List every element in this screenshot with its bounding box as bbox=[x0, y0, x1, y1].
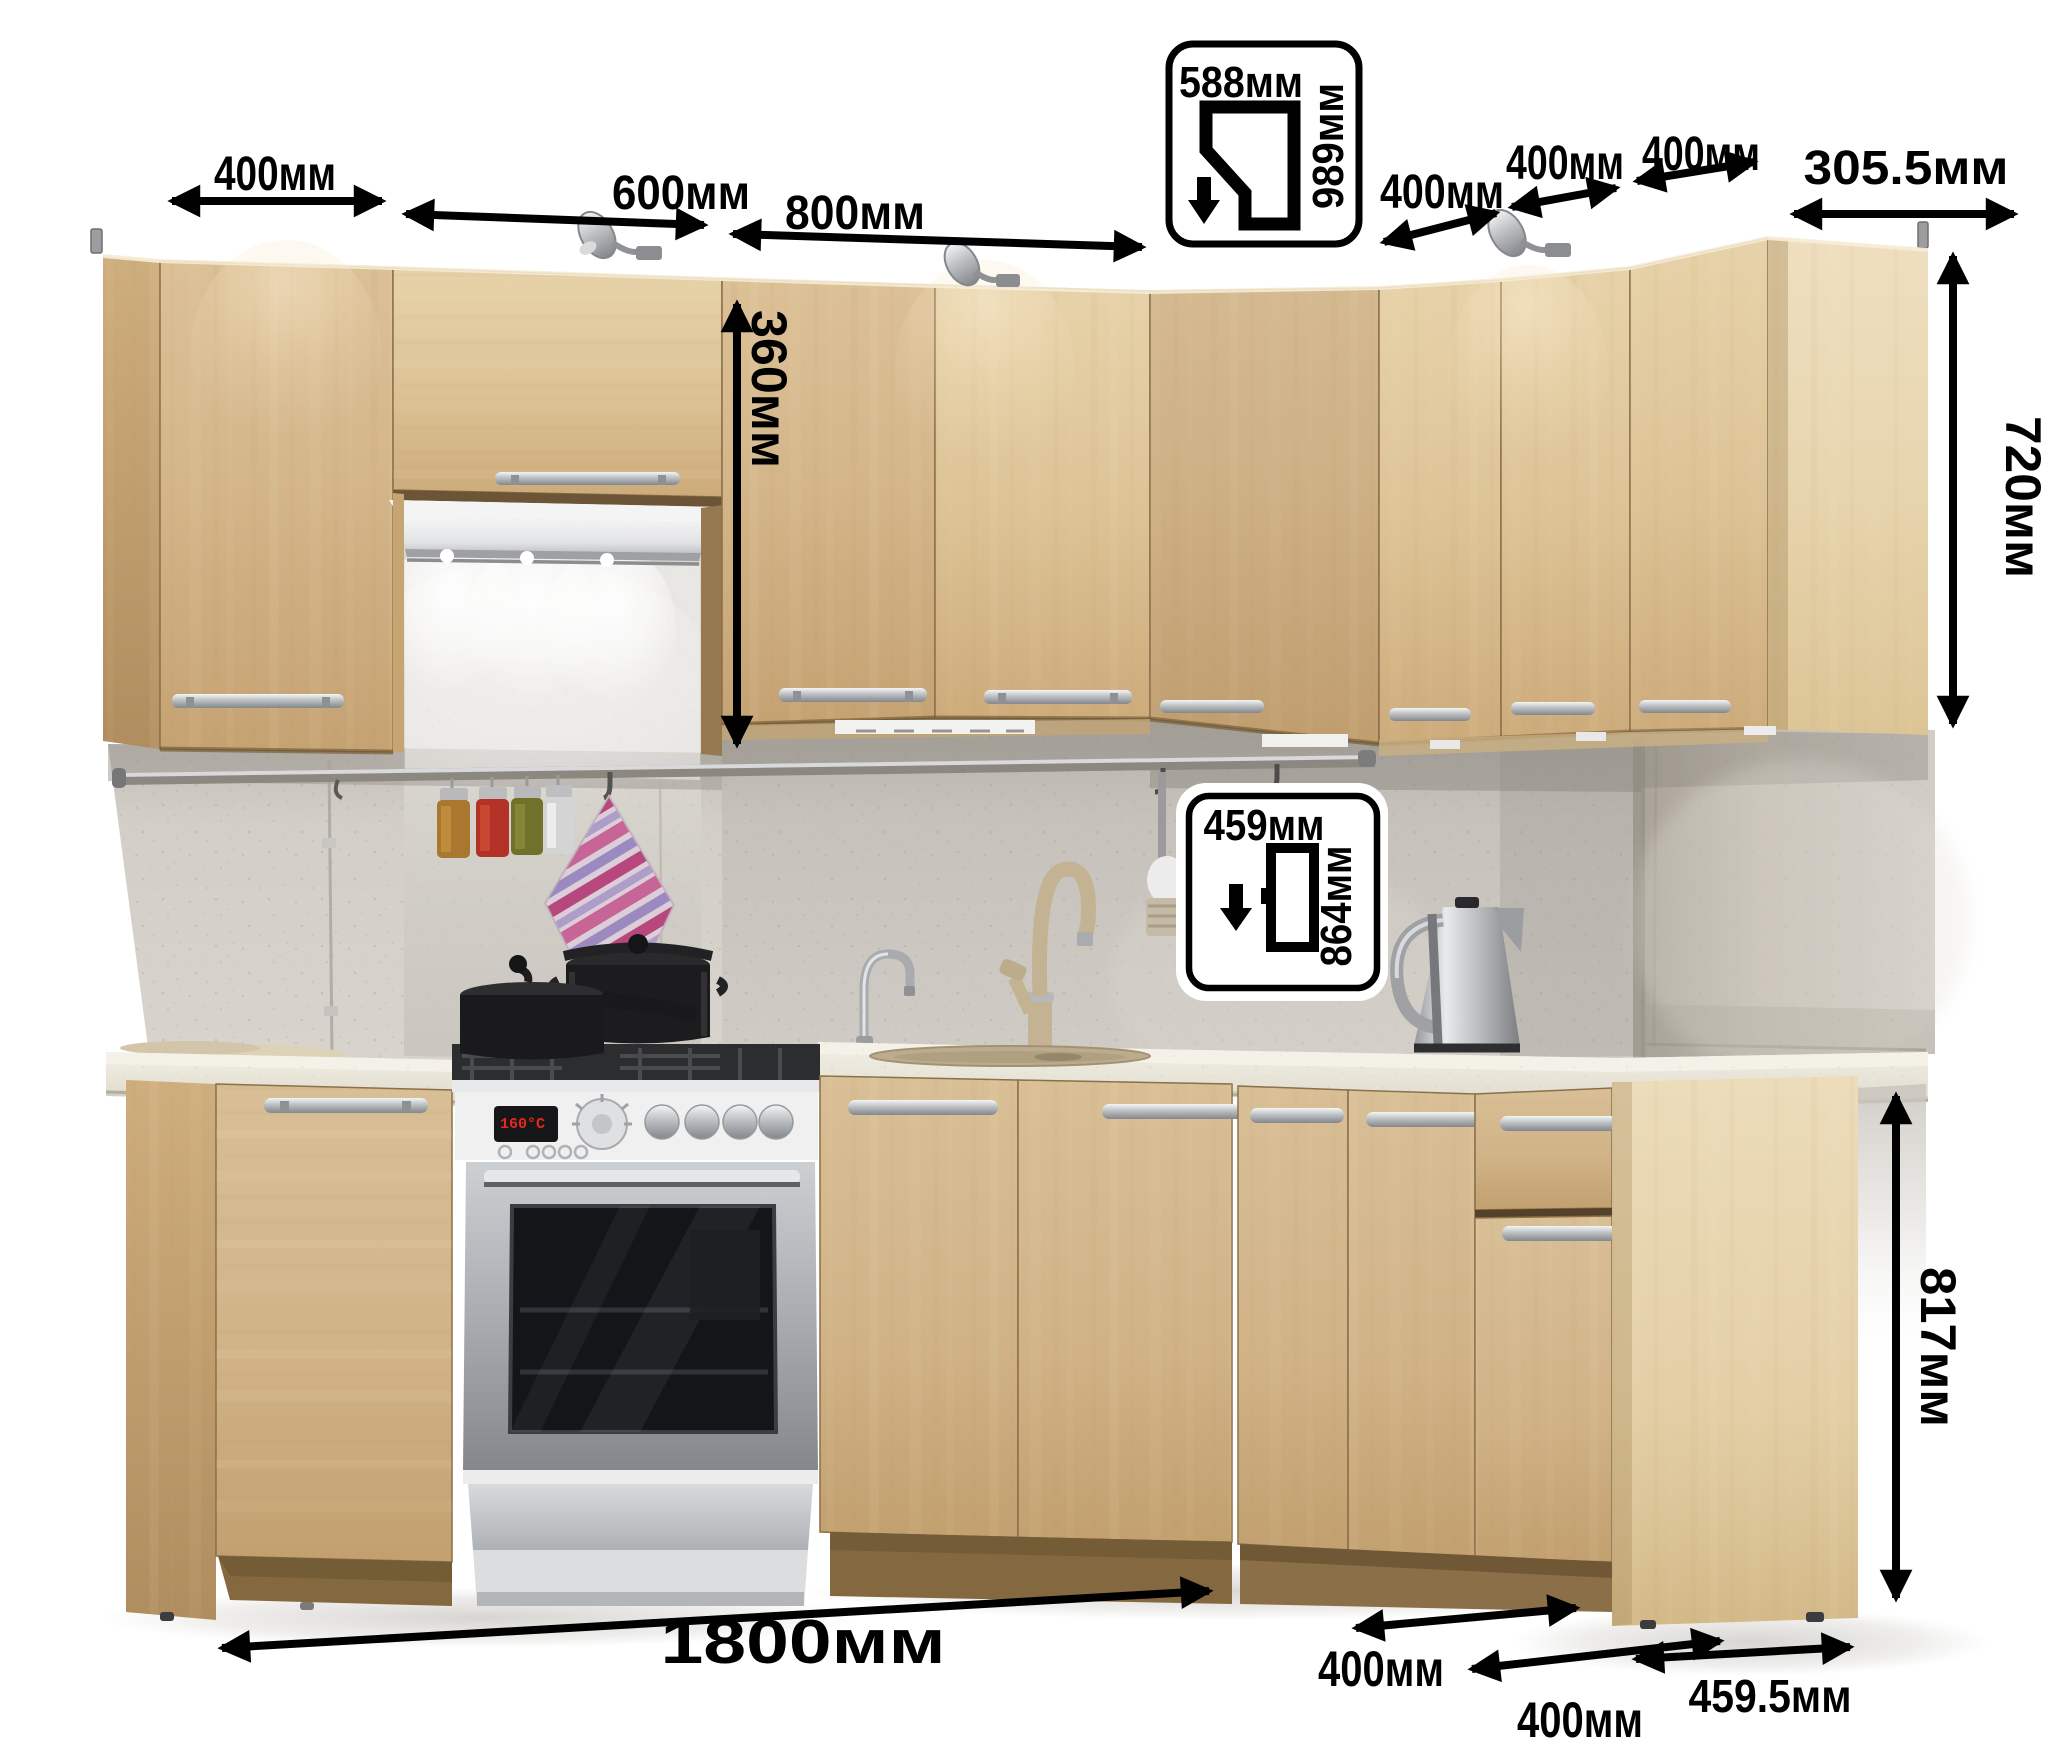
svg-text:1800мм: 1800мм bbox=[661, 1608, 946, 1677]
svg-text:720мм: 720мм bbox=[1995, 416, 2048, 578]
svg-text:864мм: 864мм bbox=[1312, 846, 1361, 967]
svg-text:360мм: 360мм bbox=[741, 310, 797, 468]
svg-text:400мм: 400мм bbox=[1506, 137, 1624, 190]
svg-text:400мм: 400мм bbox=[1642, 128, 1760, 181]
svg-text:400мм: 400мм bbox=[1517, 1692, 1643, 1748]
svg-text:400мм: 400мм bbox=[1318, 1641, 1444, 1697]
svg-text:400мм: 400мм bbox=[1380, 166, 1504, 219]
svg-text:600мм: 600мм bbox=[612, 167, 750, 220]
svg-text:400мм: 400мм bbox=[214, 148, 336, 201]
svg-text:588мм: 588мм bbox=[1179, 58, 1303, 107]
svg-text:459мм: 459мм bbox=[1204, 801, 1325, 850]
svg-text:305.5мм: 305.5мм bbox=[1804, 142, 2009, 195]
svg-text:459.5мм: 459.5мм bbox=[1689, 1670, 1852, 1722]
svg-text:817мм: 817мм bbox=[1910, 1267, 1966, 1427]
svg-text:989мм: 989мм bbox=[1304, 83, 1353, 209]
svg-text:800мм: 800мм bbox=[785, 187, 925, 240]
svg-text:160°C: 160°C bbox=[500, 1116, 545, 1133]
